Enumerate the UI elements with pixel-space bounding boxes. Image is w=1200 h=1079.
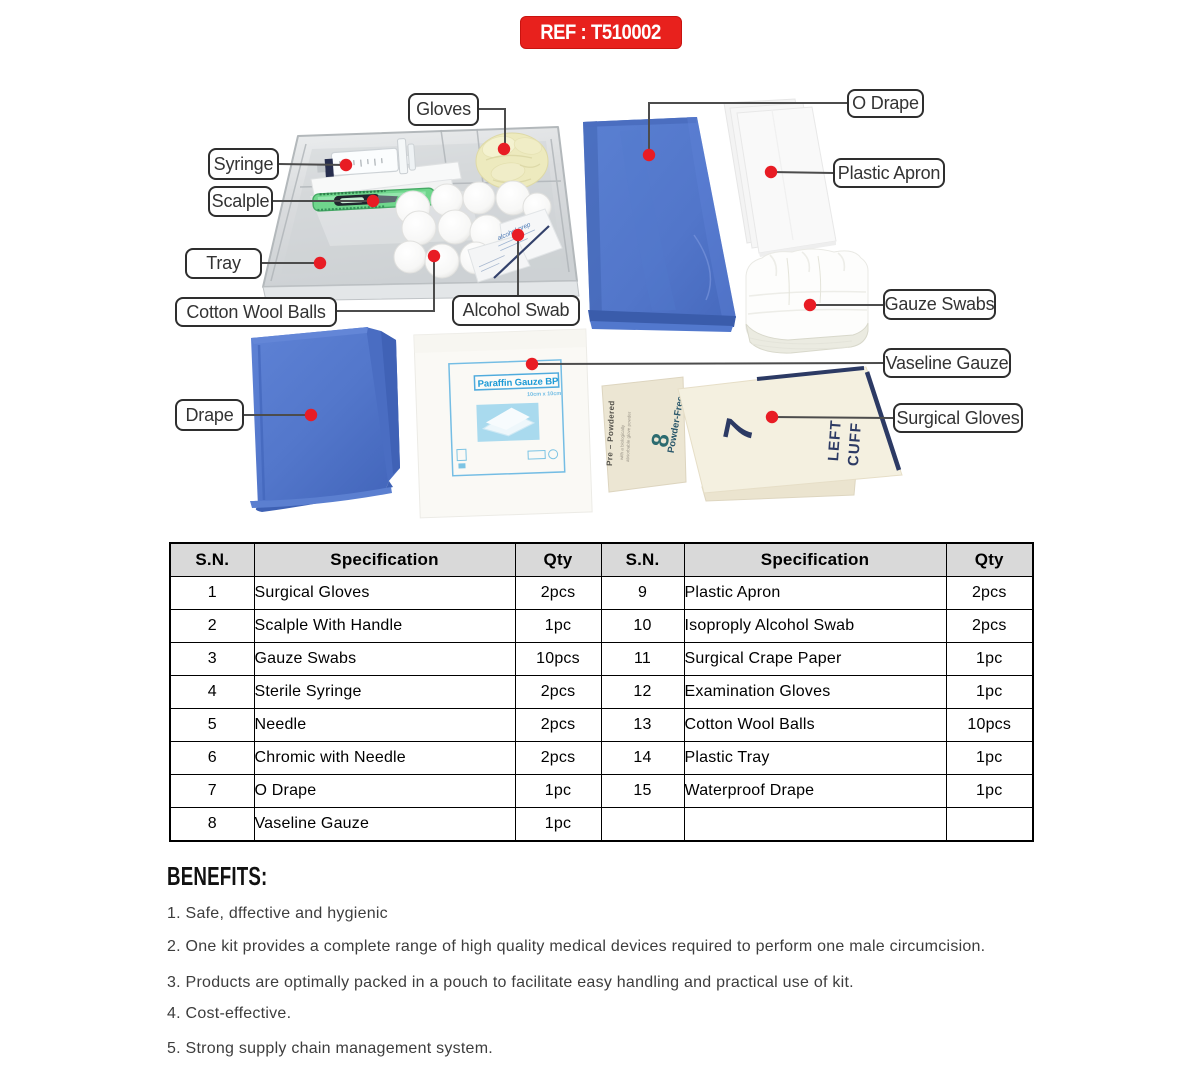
svg-text:LEFT: LEFT [825, 419, 845, 462]
svg-text:CUFF: CUFF [845, 422, 865, 467]
svg-text:10cm x 10cm: 10cm x 10cm [527, 391, 562, 398]
